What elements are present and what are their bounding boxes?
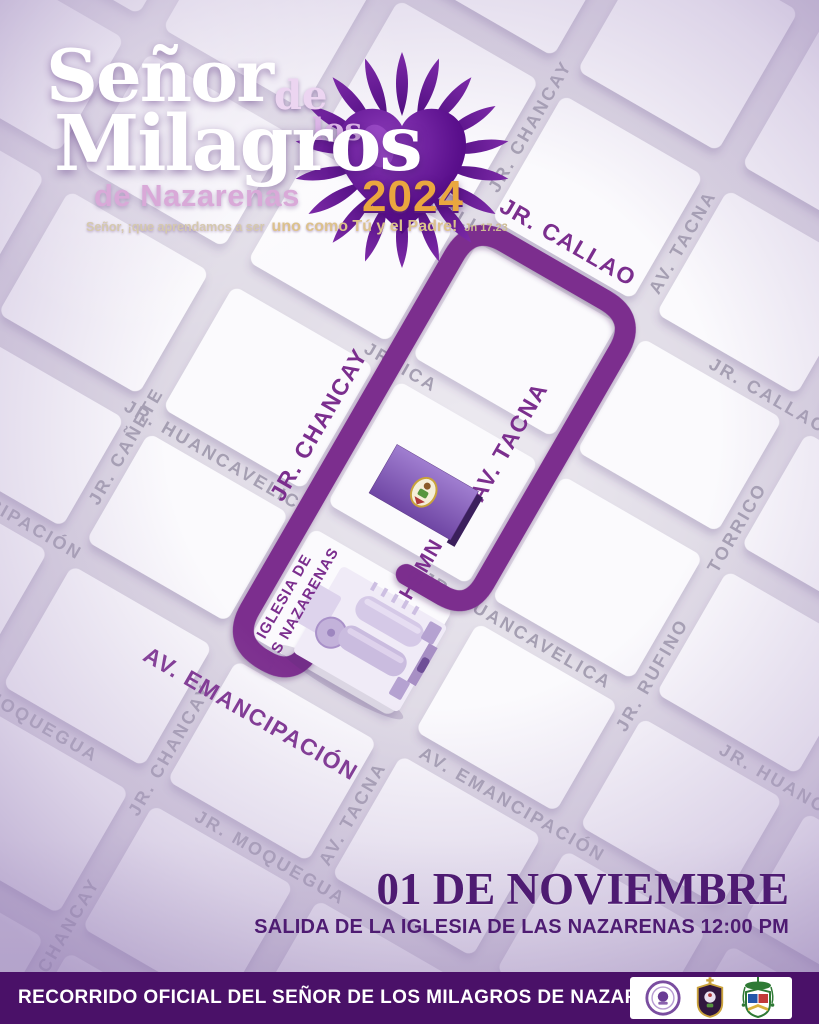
logo-subtitle: de Nazarenas	[94, 178, 300, 214]
event-departure: SALIDA DE LA IGLESIA DE LAS NAZARENAS 12…	[254, 916, 789, 939]
event-info: 01 DE NOVIEMBRE SALIDA DE LA IGLESIA DE …	[254, 866, 789, 939]
tagline-reference: Jn 17.23	[464, 222, 507, 234]
archdiocese-arms-icon	[738, 977, 778, 1019]
footer-title: RECORRIDO OFICIAL DEL SEÑOR DE LOS MILAG…	[0, 987, 693, 1009]
tagline-prefix: Señor, ¡que aprendamos a ser	[86, 220, 265, 234]
footer-bar: RECORRIDO OFICIAL DEL SEÑOR DE LOS MILAG…	[0, 972, 819, 1024]
procession-poster: JR. CHANCAY AV. TACNA JR. CALLAO JR. CAL…	[0, 0, 819, 1024]
hermandad-seal-icon	[644, 979, 682, 1017]
logo-tagline: Señor, ¡que aprendamos a ser uno como Tú…	[86, 218, 496, 236]
hsmn-crest-icon	[694, 977, 726, 1019]
footer-emblems-box	[630, 977, 792, 1019]
logo-year: 2024	[362, 172, 464, 222]
tagline-emphasis: uno como Tú y el Padre!	[272, 218, 458, 236]
event-date: 01 DE NOVIEMBRE	[254, 866, 789, 913]
logo-block: Señor de los Milagros de Nazarenas 2024 …	[30, 26, 500, 252]
